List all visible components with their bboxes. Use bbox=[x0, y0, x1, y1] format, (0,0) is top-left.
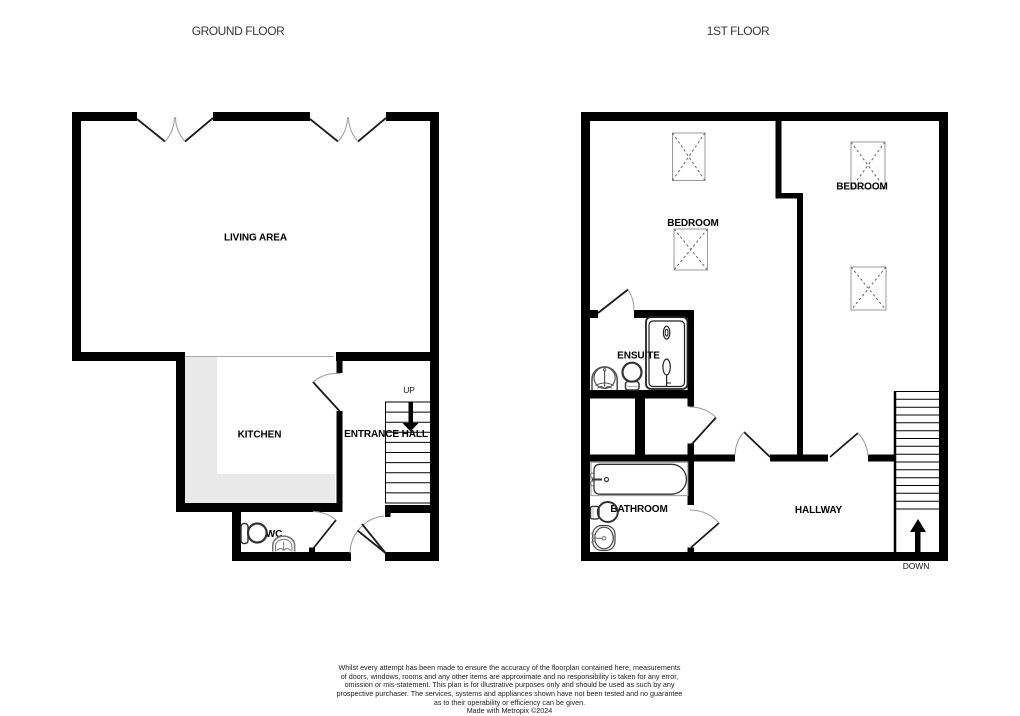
svg-text:BEDROOM: BEDROOM bbox=[667, 218, 719, 229]
svg-text:DOWN: DOWN bbox=[903, 561, 930, 571]
svg-text:ENTRANCE HALL: ENTRANCE HALL bbox=[344, 429, 428, 440]
svg-text:ENSUITE: ENSUITE bbox=[617, 351, 660, 362]
svg-text:BATHROOM: BATHROOM bbox=[610, 504, 667, 515]
svg-text:UP: UP bbox=[403, 385, 415, 395]
svg-text:LIVING AREA: LIVING AREA bbox=[224, 233, 287, 244]
svg-text:1ST FLOOR: 1ST FLOOR bbox=[707, 24, 770, 38]
svg-text:GROUND FLOOR: GROUND FLOOR bbox=[192, 24, 285, 38]
svg-text:KITCHEN: KITCHEN bbox=[238, 430, 282, 441]
svg-text:BEDROOM: BEDROOM bbox=[836, 182, 888, 193]
svg-text:HALLWAY: HALLWAY bbox=[795, 505, 843, 516]
svg-text:WC: WC bbox=[266, 529, 282, 540]
